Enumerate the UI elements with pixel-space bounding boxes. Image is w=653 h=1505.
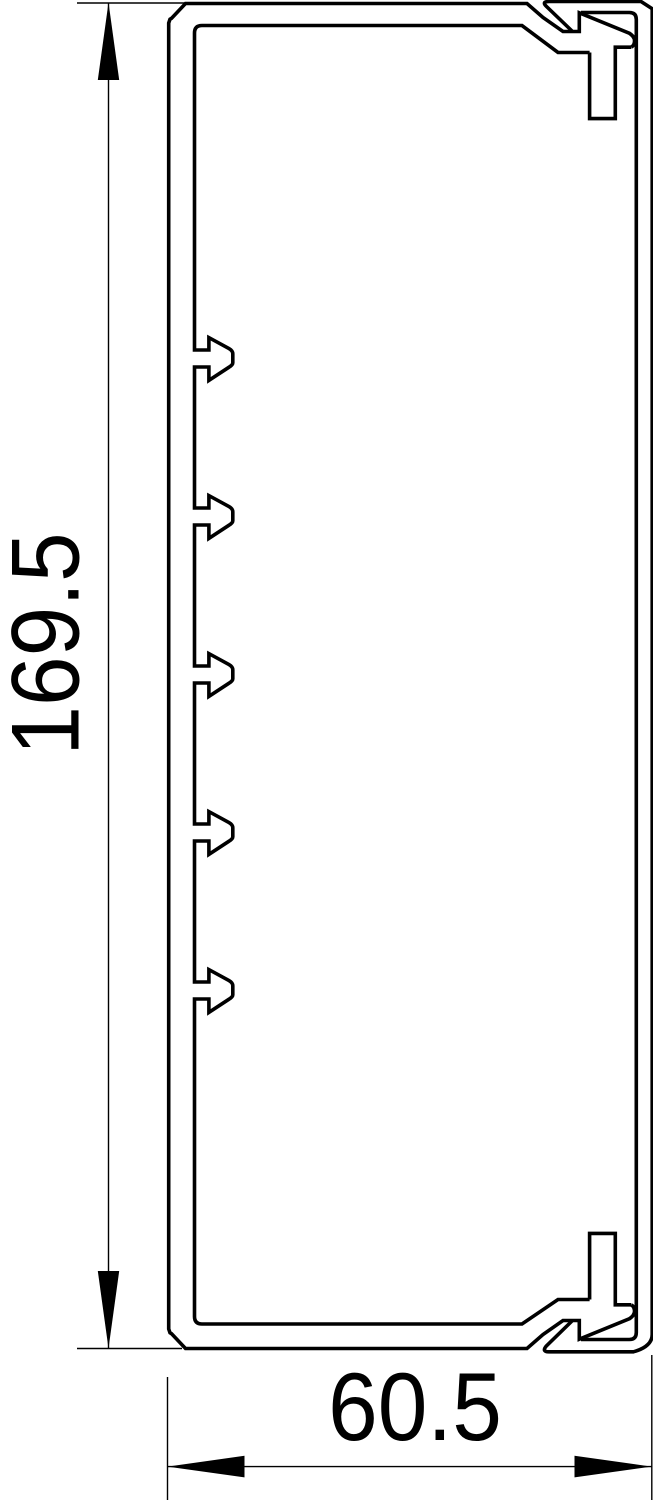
svg-text:169.5: 169.5 (0, 532, 99, 755)
svg-text:60.5: 60.5 (328, 1353, 502, 1461)
